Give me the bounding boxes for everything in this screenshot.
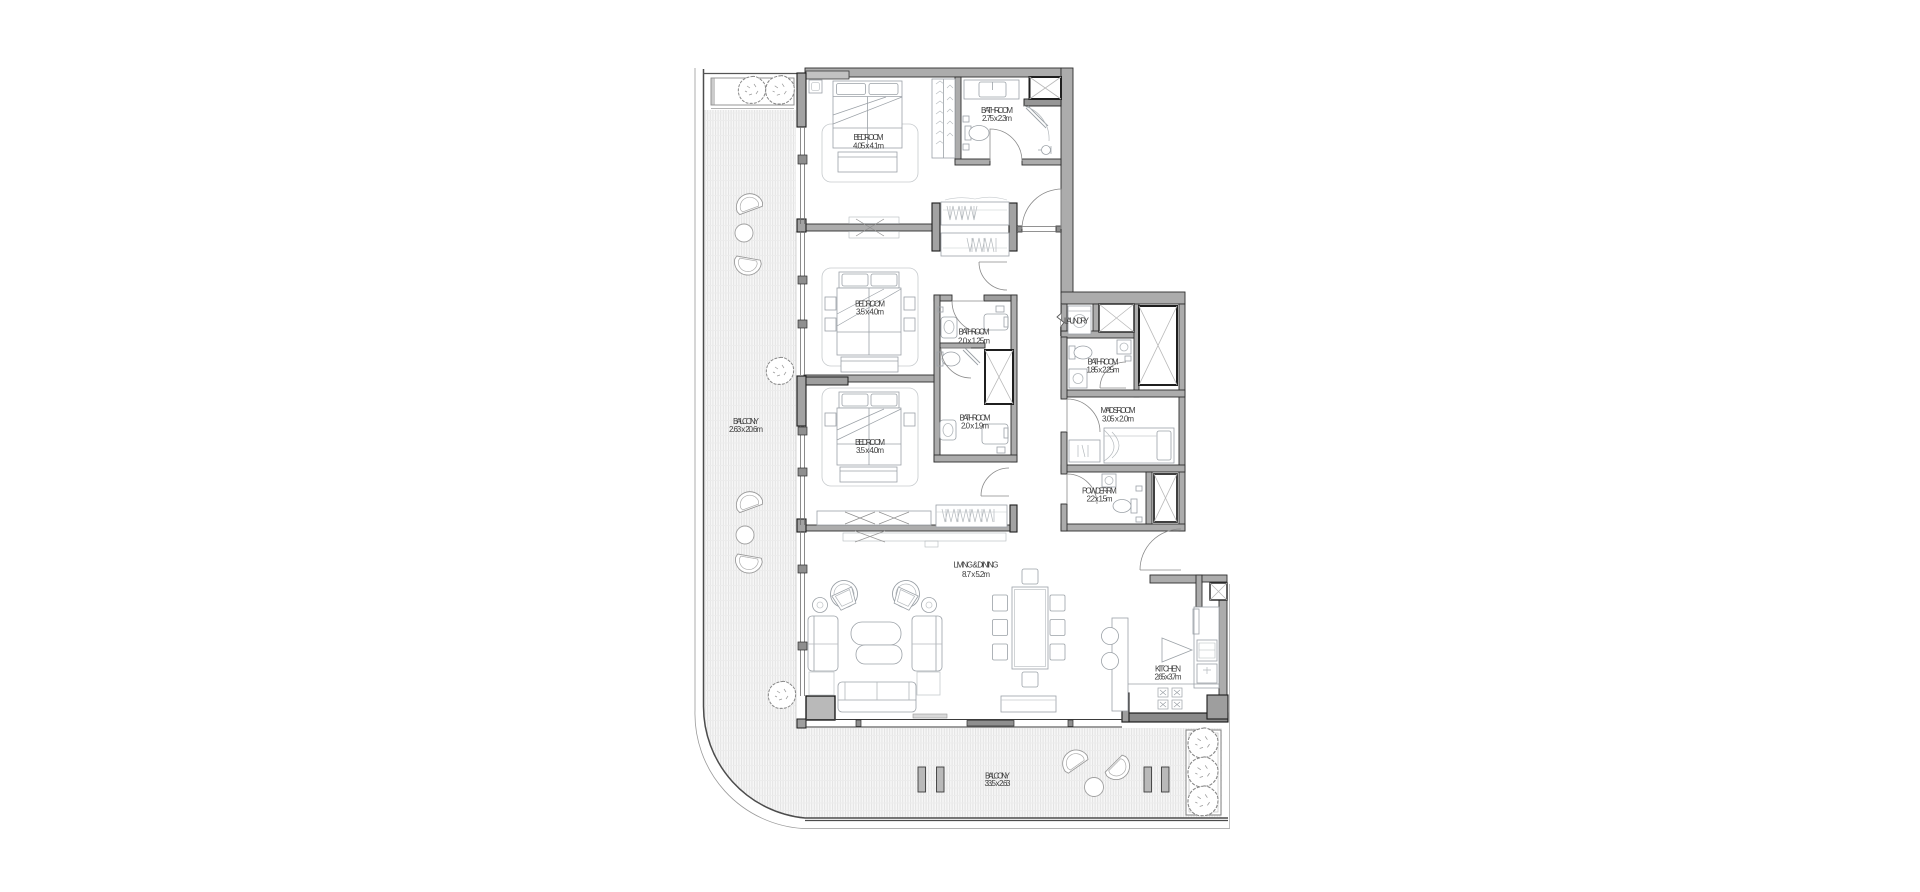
svg-text:1.85 x 2.25m: 1.85 x 2.25m <box>1087 366 1120 375</box>
svg-text:3.5 x 4.0m: 3.5 x 4.0m <box>856 446 884 455</box>
svg-text:2.63 x 20.6m: 2.63 x 20.6m <box>729 425 763 434</box>
svg-text:2.65 x 3.7m: 2.65 x 3.7m <box>1155 673 1182 682</box>
svg-text:3.05 x 2.0m: 3.05 x 2.0m <box>1102 415 1134 424</box>
svg-text:8.7 x 5.2m: 8.7 x 5.2m <box>962 570 990 579</box>
svg-text:3.5 x 4.0m: 3.5 x 4.0m <box>856 307 884 316</box>
svg-text:BATHROOM: BATHROOM <box>959 328 990 337</box>
svg-text:2.0 x 1.9m: 2.0 x 1.9m <box>961 422 989 431</box>
svg-text:2.2 x 1.5m: 2.2 x 1.5m <box>1087 495 1113 504</box>
svg-text:LIVING & DINING: LIVING & DINING <box>954 561 999 570</box>
svg-text:LAUNDRY: LAUNDRY <box>1064 317 1090 326</box>
svg-text:4.05 x 4.1m: 4.05 x 4.1m <box>853 141 884 150</box>
svg-text:2.0 x 1.25m: 2.0 x 1.25m <box>958 337 990 346</box>
svg-text:33.5 x 2.63: 33.5 x 2.63 <box>985 779 1012 788</box>
svg-text:2.75 x 2.3m: 2.75 x 2.3m <box>982 114 1012 123</box>
